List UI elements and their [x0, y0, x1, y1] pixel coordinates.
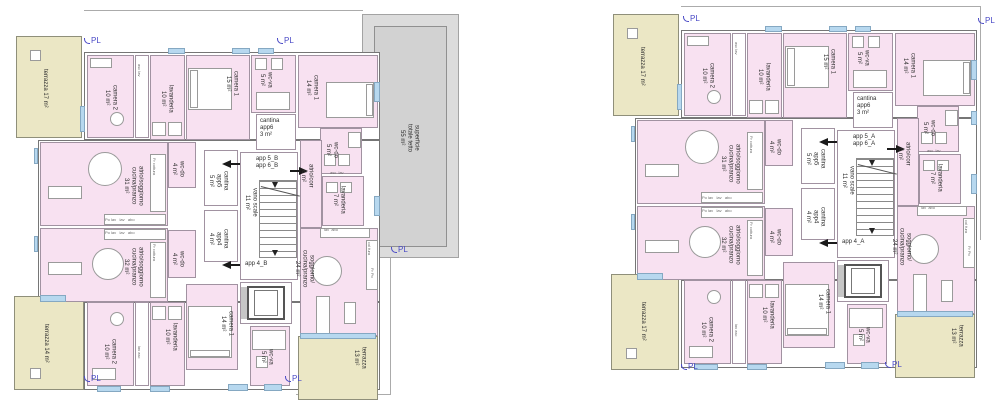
window [825, 362, 845, 369]
label-cantina-app4: cantina app4 4 m² [804, 194, 826, 240]
label-cantina-app4: cantina app4 4 m² [207, 216, 229, 262]
label-vano-scale: vano scale 11 m² [840, 154, 854, 206]
stairs-arrow-icon [869, 228, 875, 234]
sofa [645, 164, 679, 177]
bed-pillow [190, 70, 198, 108]
window [829, 26, 847, 32]
terrace-13-label: terrazza 13 m² [949, 318, 963, 354]
armchair [941, 280, 953, 302]
pl-marker: PL [683, 14, 700, 23]
floor-plan-left: superficie totale tetto 55 m² terrazza 1… [0, 0, 500, 408]
stairs [856, 158, 894, 236]
toilet [868, 36, 880, 48]
bed-pillow [787, 328, 827, 335]
window [34, 148, 38, 164]
sofa [48, 186, 82, 199]
dining-table [312, 256, 342, 286]
pl-marker: PL [885, 360, 902, 369]
dining-table [689, 226, 721, 258]
bed-pillow [787, 48, 795, 86]
terrace-top-label: terrazza 17 m² [638, 26, 645, 106]
sofa [48, 262, 82, 275]
label-app-5-6: app 5_B app 6_B [242, 156, 292, 170]
label-camera2-bot: camera 2 10 m² [102, 326, 116, 378]
label-wcdo-5: wc-do 5 m² [324, 132, 338, 168]
roof-label: superficie totale tetto 55 m² [398, 98, 420, 178]
shaft-asc-bot [135, 302, 149, 386]
label-app-4: app 4_A [842, 239, 886, 246]
window [971, 111, 977, 125]
label-kitchen-24-side: col fura [964, 220, 969, 244]
sofa [913, 274, 927, 312]
label-lavanderia-top: lavanderia 10 m² [159, 64, 173, 134]
window [80, 106, 85, 132]
label-vano-scale: vano scale 11 m² [243, 176, 257, 228]
terrace-bottom-label: terrazza 14 m² [42, 302, 49, 384]
label-app-5-6: app 5_A app 6_A [839, 134, 889, 148]
label-kitchen-24-side: Fr Po [967, 246, 972, 268]
label-camera1-15: camera 1 15 m² [821, 38, 835, 86]
label-cantina-app5: cantina app5 5 m² [804, 136, 826, 182]
label-lavanderia-top: lavanderia 10 m² [756, 42, 770, 112]
bed-pillow [963, 62, 970, 94]
label-cantina-app5: cantina app5 5 m² [207, 158, 229, 204]
window [971, 174, 977, 194]
label-kitchen-31-side: Fr cottura [749, 136, 754, 180]
stairs [259, 180, 297, 258]
window [855, 26, 871, 32]
label-asc-7: asc lav [927, 148, 957, 153]
label-kitchen-24-top: lav abo [324, 227, 364, 232]
label-wcva-top: wc-va 5 m² [855, 38, 869, 78]
label-camera1-14-bot: camera 1 14 m² [219, 298, 233, 350]
stool [707, 290, 721, 304]
window [34, 236, 38, 252]
floor-plan-canvas: superficie totale tetto 55 m² terrazza 1… [0, 0, 1000, 408]
label-cantina-app6: cantina app6 3 m² [260, 118, 294, 139]
label-kitchen-32: Po lav lav abo [702, 208, 762, 213]
elevator-cab [254, 290, 278, 316]
label-wcva-top: wc-va 5 m² [258, 60, 272, 100]
dining-table [92, 248, 124, 280]
label-atrio-31: atrio/soggiorno cucina/pranzo 31 m² [719, 124, 741, 204]
terrace-door [637, 273, 663, 280]
label-camera2-top: camera 2 10 m² [700, 40, 714, 112]
roof-overhang-line [681, 6, 981, 7]
label-kitchen-32: Po lav lav abo [105, 230, 165, 235]
terrace-door [40, 295, 66, 302]
label-atrio-32: atrio/soggiorno cucina/pranzo 32 m² [122, 234, 144, 300]
terrace-pillar [626, 348, 637, 359]
terrace-pillar [30, 50, 41, 61]
window [168, 48, 185, 54]
window [677, 84, 682, 110]
label-wcva-bot: wc-va 5 m² [856, 314, 870, 356]
pl-marker: PL [277, 36, 294, 45]
pl-marker: PL [681, 362, 698, 371]
terrace-top [613, 14, 679, 116]
window [150, 386, 170, 392]
label-lavanderia-bot: lavanderia 10 m² [760, 284, 774, 346]
armchair [344, 302, 356, 324]
label-kitchen-32-side: Fr cottura [152, 244, 157, 288]
label-camera1-14-top: camera 1 14 m² [901, 40, 915, 92]
window [374, 196, 380, 216]
window [232, 48, 250, 54]
pl-marker: PL [84, 374, 101, 383]
label-asc-top: asc lav [734, 42, 739, 68]
terrace-door [897, 311, 973, 317]
label-atrio-corr: atrio/corr 6 m² [299, 148, 313, 204]
shower [348, 132, 361, 148]
label-kitchen-24-top: lav abo [921, 205, 961, 210]
label-atrio-corr: atrio/corr 6 m² [896, 126, 910, 182]
dining-table [909, 234, 939, 264]
label-wcdo-5: wc-do 5 m² [921, 110, 935, 146]
label-lavanderia-bot: lavanderia 10 m² [163, 306, 177, 368]
label-atrio-32: atrio/soggiorno cucina/pranzo 32 m² [719, 212, 741, 278]
toilet [935, 132, 947, 144]
terrace-door [300, 333, 376, 339]
terrace-top [16, 36, 82, 138]
bed-pillow [366, 84, 373, 116]
label-soggiorno-24: soggiorno/ cucina/pranzo 24 m² [293, 226, 315, 312]
terrace-pillar [30, 368, 41, 379]
pl-marker: PL [391, 245, 408, 254]
pl-marker: PL [978, 16, 995, 25]
label-cantina-app6: cantina app6 3 m² [857, 96, 891, 117]
shower [945, 110, 958, 126]
label-asc-top: asc lav [137, 64, 142, 90]
window [747, 364, 767, 370]
window [258, 48, 274, 54]
label-kitchen-24-side: Fr Po [370, 268, 375, 290]
label-kitchen-32-side: Fr cottura [749, 222, 754, 266]
floor-plan-right: terrazza 17 m² terrazza 17 m² terrazza 1… [597, 0, 1000, 408]
window [631, 214, 635, 230]
window [97, 386, 121, 392]
entry-arrow-left-icon [222, 261, 240, 269]
sofa [645, 240, 679, 253]
label-soggiorno-24: soggiorno/ cucina/pranzo 24 m² [890, 204, 912, 290]
label-asc-bot: lav asc [734, 324, 739, 350]
stairs-arrow-icon [272, 250, 278, 256]
roof-overhang-line [980, 6, 981, 240]
pl-marker: PL [84, 36, 101, 45]
shaft-asc-bot [732, 280, 746, 364]
window [971, 60, 977, 80]
dining-table [88, 152, 122, 186]
terrace-13-label: terrazza 13 m² [352, 340, 366, 376]
label-wcdo-4b: wc-do 4 m² [170, 240, 184, 278]
label-kitchen-31-side: Fr cottura [152, 158, 157, 202]
entry-arrow-left-icon [819, 239, 837, 247]
window [228, 384, 248, 391]
label-kitchen-31: Po lav lav abo [105, 217, 165, 222]
label-asc-7: asc lav [330, 170, 360, 175]
elevator-cab [851, 268, 875, 294]
terrace-pillar [627, 28, 638, 39]
terrace-top-label: terrazza 17 m² [41, 48, 48, 128]
label-atrio-31: atrio/soggiorno cucina/pranzo 31 m² [122, 146, 144, 226]
window [631, 126, 635, 142]
label-camera1-14-bot: camera 1 14 m² [816, 276, 830, 328]
label-lavanderia-7: lavanderia 7 m² [331, 176, 345, 224]
label-asc-bot: lav asc [137, 346, 142, 372]
toilet [271, 58, 283, 70]
roof-overhang-line [84, 10, 363, 11]
pl-marker: PL [285, 374, 302, 383]
label-camera2-bot: camera 2 10 m² [699, 304, 713, 356]
bed-pillow [190, 350, 230, 357]
stairs-arrow-icon [869, 160, 875, 166]
window [264, 384, 282, 391]
window [374, 82, 380, 102]
label-camera1-14-top: camera 1 14 m² [304, 62, 318, 114]
stairs-arrow-icon [272, 182, 278, 188]
label-wcdo-4a: wc-do 4 m² [767, 128, 781, 166]
sofa [316, 296, 330, 334]
label-lavanderia-7: lavanderia 7 m² [928, 154, 942, 202]
terrace-bottom-label: terrazza 17 m² [639, 280, 646, 362]
stool [110, 312, 124, 326]
label-wcdo-4b: wc-do 4 m² [767, 218, 781, 256]
toilet [338, 154, 350, 166]
label-kitchen-31: Po lav lav abo [702, 195, 762, 200]
label-app-4: app 4_B [245, 261, 289, 268]
dining-table [685, 130, 719, 164]
label-camera2-top: camera 2 10 m² [103, 62, 117, 134]
window [765, 26, 782, 32]
roof-overhang-line [390, 258, 391, 395]
window [861, 362, 879, 369]
label-camera1-15: camera 1 15 m² [224, 60, 238, 108]
label-wcva-bot: wc-va 5 m² [259, 336, 273, 378]
label-wcdo-4a: wc-do 4 m² [170, 150, 184, 188]
label-kitchen-24-side: col fura [367, 242, 372, 266]
